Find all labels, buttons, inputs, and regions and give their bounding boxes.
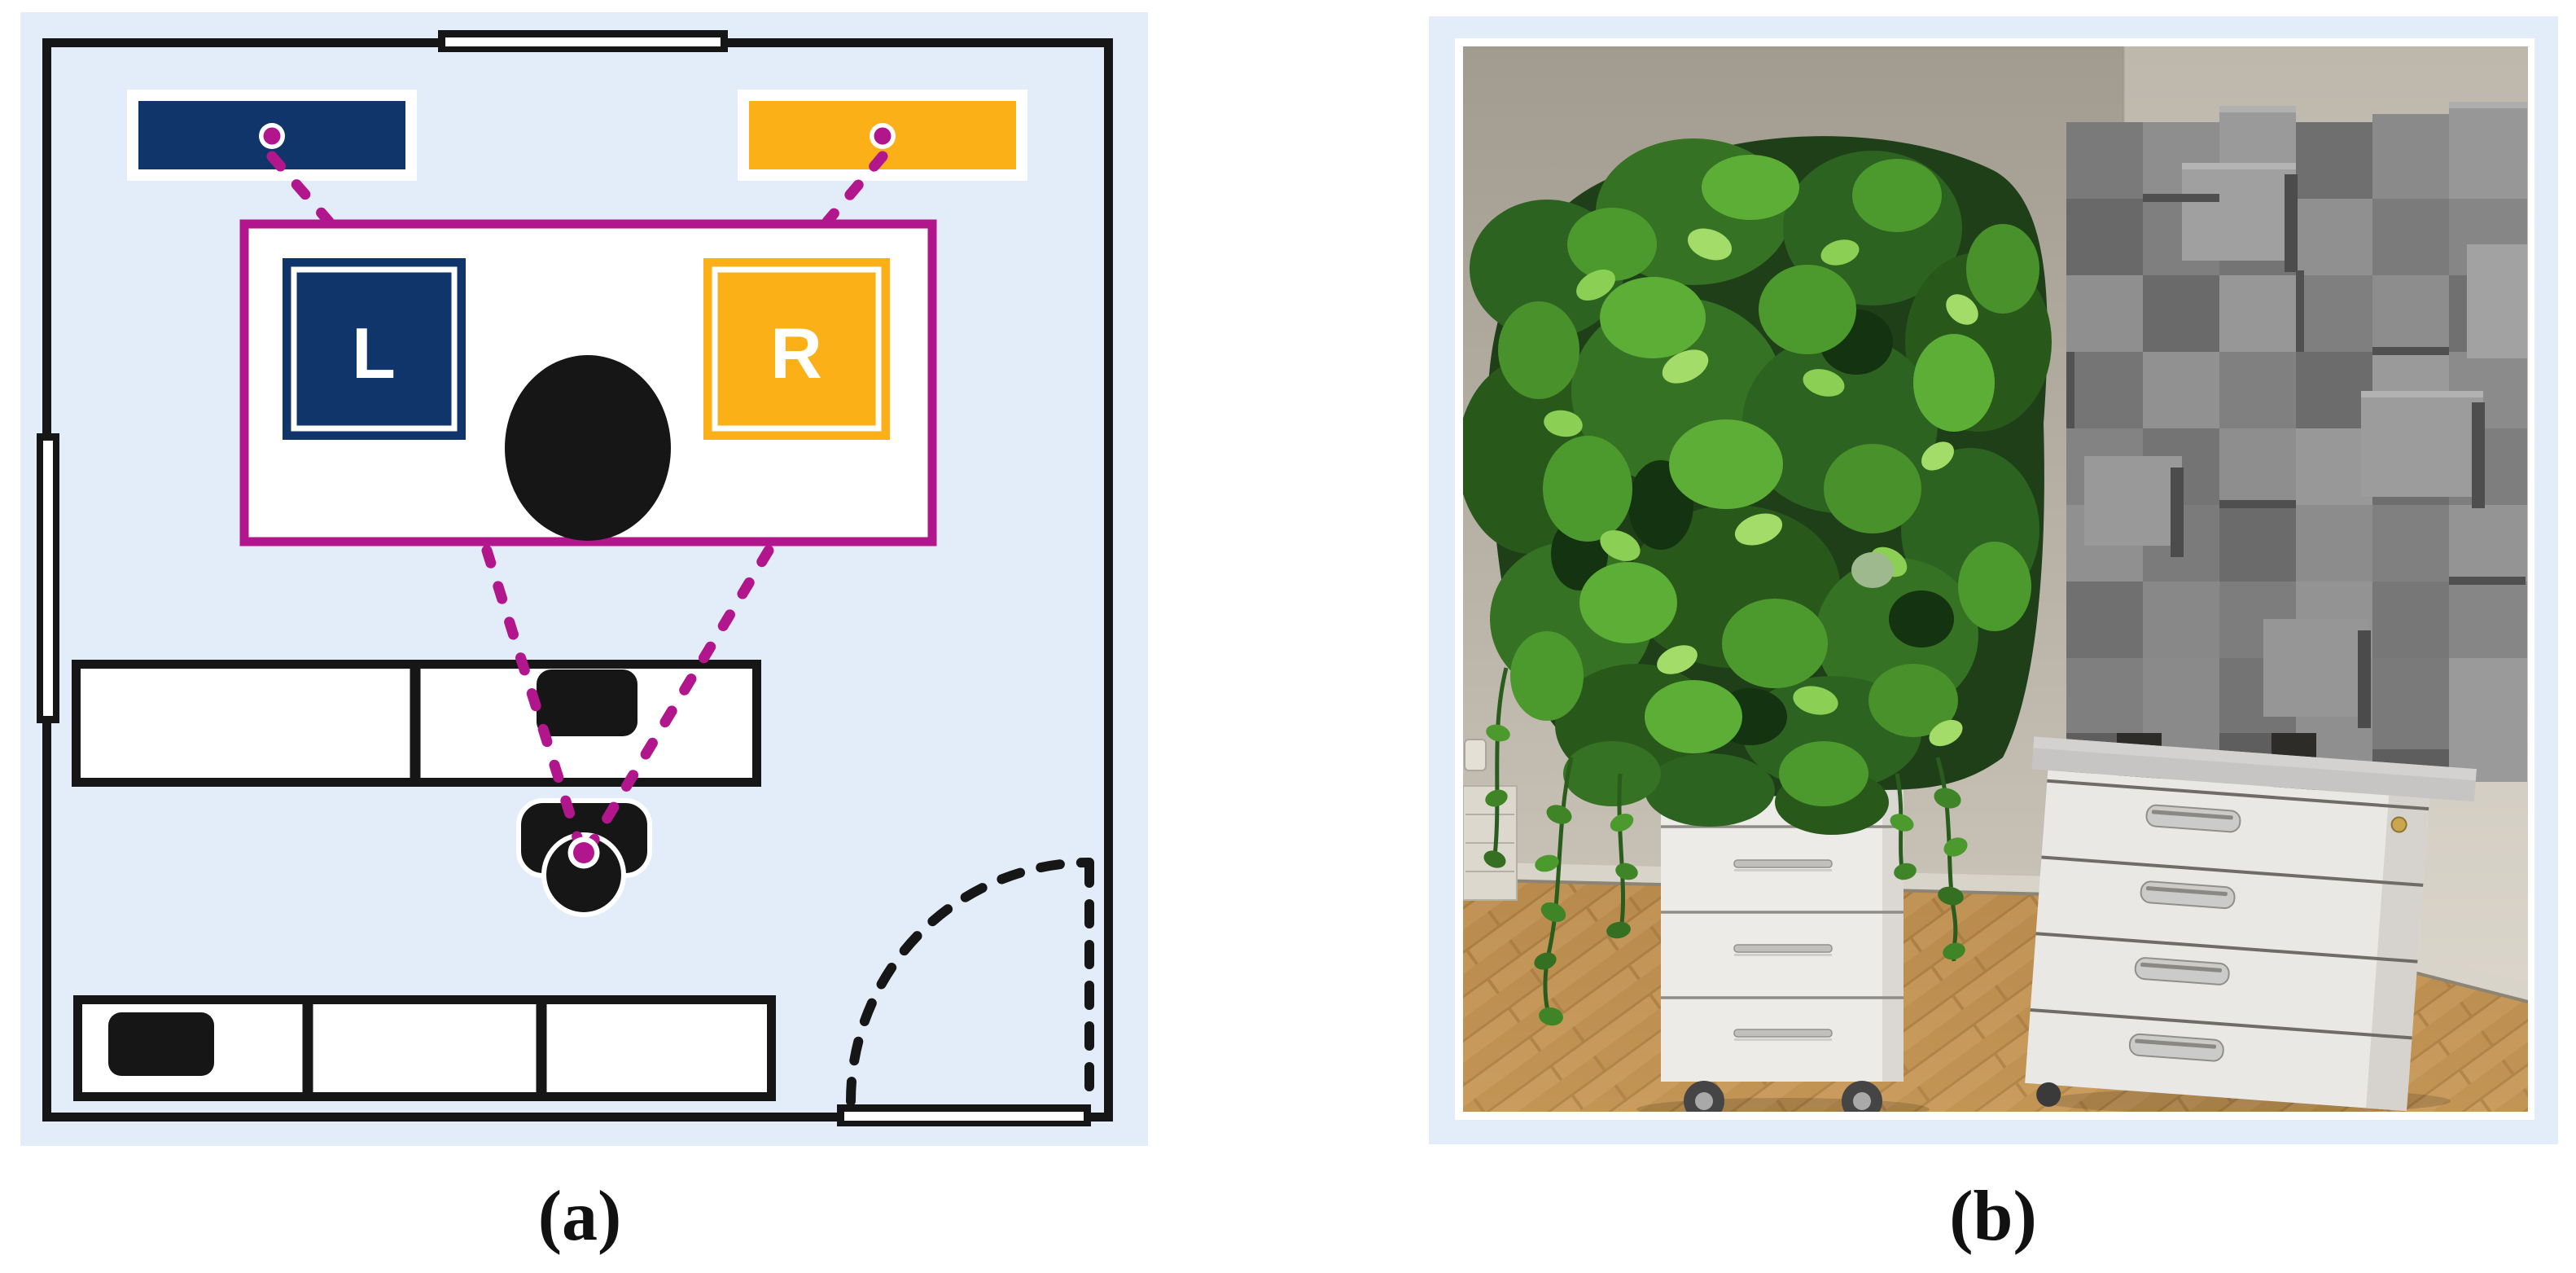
top-window-glass bbox=[445, 37, 721, 46]
desk-monitor bbox=[537, 669, 637, 736]
diffuser-blocks bbox=[2066, 102, 2527, 782]
left-window-glass bbox=[43, 441, 53, 716]
wall-outlet bbox=[1465, 740, 1486, 770]
stage-dummy-ellipse bbox=[505, 355, 671, 541]
pale-heart-leaf bbox=[1851, 552, 1894, 588]
left-sample-box: L bbox=[283, 258, 466, 440]
storage-table bbox=[78, 997, 772, 1100]
left-sample-label: L bbox=[352, 313, 396, 393]
cabinet-keyhole bbox=[2391, 817, 2407, 832]
acoustic-diffuser bbox=[2066, 102, 2527, 782]
door-leaf bbox=[844, 1112, 1084, 1121]
figure-page: L R bbox=[0, 0, 2576, 1273]
caption-a: (a) bbox=[538, 1177, 622, 1256]
figure-image: L R bbox=[0, 0, 2576, 1273]
storage-equipment-box bbox=[108, 1012, 214, 1076]
top-window bbox=[438, 30, 728, 52]
right-speaker-dot bbox=[874, 128, 892, 145]
listener-head-dot bbox=[573, 842, 594, 863]
caption-b: (b) bbox=[1949, 1177, 2037, 1256]
right-sample-box: R bbox=[703, 258, 890, 440]
left-window bbox=[37, 433, 59, 723]
left-speaker-dot bbox=[264, 128, 281, 145]
panel-a: L R bbox=[20, 12, 1148, 1256]
desk-table bbox=[77, 661, 757, 785]
right-drawer-cabinet bbox=[2007, 736, 2477, 1136]
panel-b: (b) bbox=[1429, 16, 2558, 1256]
right-sample-label: R bbox=[770, 313, 822, 393]
photo bbox=[1457, 46, 2528, 1136]
room-background bbox=[20, 12, 1148, 1146]
